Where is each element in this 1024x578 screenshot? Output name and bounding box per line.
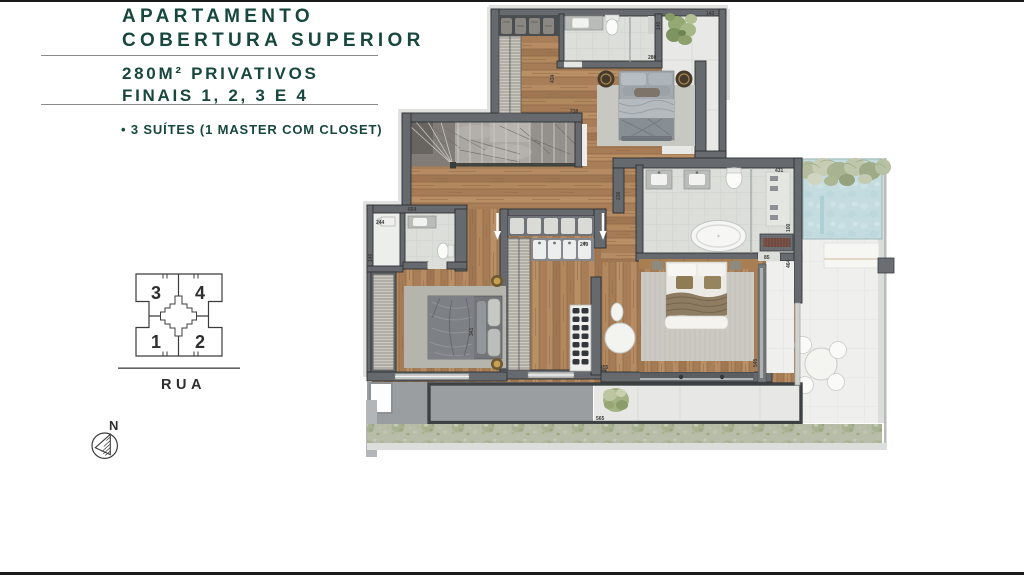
svg-text:280: 280 xyxy=(648,55,657,61)
svg-text:143: 143 xyxy=(706,11,715,17)
svg-text:545: 545 xyxy=(753,358,759,367)
svg-text:455: 455 xyxy=(600,365,609,371)
svg-text:236: 236 xyxy=(616,191,622,200)
svg-text:238: 238 xyxy=(570,109,579,115)
svg-text:654: 654 xyxy=(408,207,417,213)
svg-text:244: 244 xyxy=(376,220,385,226)
svg-text:85: 85 xyxy=(764,255,770,261)
svg-text:100: 100 xyxy=(786,223,792,232)
svg-text:341: 341 xyxy=(469,327,475,336)
svg-text:431: 431 xyxy=(775,168,784,174)
svg-text:434: 434 xyxy=(550,74,556,83)
svg-text:565: 565 xyxy=(596,416,605,422)
svg-text:249: 249 xyxy=(580,242,589,248)
svg-text:464: 464 xyxy=(786,259,792,268)
svg-text:140: 140 xyxy=(656,21,662,30)
svg-text:140: 140 xyxy=(368,253,374,262)
